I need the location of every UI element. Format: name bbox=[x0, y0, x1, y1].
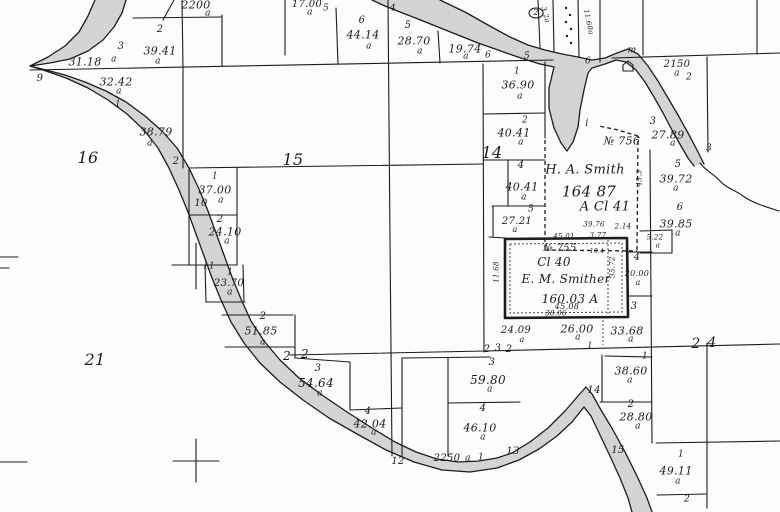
map-label: a bbox=[575, 334, 581, 343]
map-label: 2 bbox=[628, 400, 635, 410]
map-label: a bbox=[218, 197, 224, 206]
map-label: 5 bbox=[323, 5, 329, 14]
map-label: 4 bbox=[365, 407, 372, 417]
map-label: 4 bbox=[518, 161, 525, 171]
map-label: a bbox=[512, 226, 517, 234]
map-label: 2250 bbox=[434, 454, 461, 464]
map-label: 3 bbox=[495, 344, 502, 354]
map-label: 2 bbox=[684, 496, 690, 505]
map-label: 15 bbox=[283, 152, 304, 168]
map-label: m bbox=[628, 47, 637, 56]
map-label: Cl 40 bbox=[537, 256, 571, 268]
map-label: 3 bbox=[118, 42, 125, 52]
map-label: 2 bbox=[157, 25, 164, 35]
map-label: 5.22 bbox=[647, 235, 664, 242]
map-label: a bbox=[155, 58, 161, 67]
map-label: 2 bbox=[217, 215, 224, 225]
map-label: i bbox=[585, 119, 589, 129]
map-label: 5 bbox=[675, 160, 682, 170]
map-label: a bbox=[317, 390, 323, 399]
map-label: 37.00 bbox=[199, 185, 232, 196]
map-label: 31.18 bbox=[69, 57, 102, 68]
map-label: 1 bbox=[678, 451, 684, 460]
map-label: 49.11 bbox=[660, 466, 693, 477]
map-label: 44.14 bbox=[347, 30, 380, 41]
map-label: 27.89 bbox=[652, 130, 685, 141]
map-label: 11.60a bbox=[582, 9, 594, 36]
map-label: a bbox=[521, 194, 527, 203]
map-label: 10 bbox=[194, 199, 207, 209]
map-label: 14 bbox=[482, 145, 503, 161]
map-label: 1 bbox=[115, 101, 121, 110]
map-label: 20.00 bbox=[625, 270, 649, 278]
map-label: a bbox=[517, 93, 523, 102]
map-label: 51.85 bbox=[245, 326, 278, 337]
map-label: a bbox=[627, 377, 633, 386]
map-label: a bbox=[628, 336, 634, 345]
map-label: 33.68 bbox=[611, 326, 644, 337]
map-label: a bbox=[519, 336, 524, 344]
map-label: 40.41 bbox=[498, 128, 531, 139]
map-label: a bbox=[674, 70, 680, 79]
map-label: 2 bbox=[522, 117, 528, 126]
map-label: 2 bbox=[686, 74, 692, 83]
map-label: 1 bbox=[478, 454, 484, 463]
map-label: a bbox=[656, 243, 660, 250]
map-label: 5 bbox=[528, 206, 534, 215]
plat-labels: 2200a17.00a52339.41a31.18a932.42a138.79a… bbox=[0, 0, 780, 512]
map-label: 6 bbox=[585, 58, 591, 67]
map-label: 45.3 bbox=[637, 170, 644, 187]
map-label: 11.68 bbox=[494, 261, 501, 283]
map-label: 2 bbox=[260, 312, 267, 322]
map-label: 9 bbox=[37, 74, 44, 84]
map-label: a bbox=[675, 478, 681, 487]
map-label: 5 bbox=[405, 21, 412, 31]
map-label: 3.2a bbox=[539, 6, 550, 24]
map-label: a bbox=[417, 48, 423, 57]
map-label: № 756 bbox=[604, 136, 640, 147]
map-label: a bbox=[673, 185, 679, 194]
map-label: 4 bbox=[707, 336, 716, 350]
map-label: 2 bbox=[506, 345, 513, 355]
map-label: a bbox=[675, 230, 681, 239]
map-label: 6 bbox=[359, 16, 366, 26]
map-label: 2 bbox=[533, 9, 538, 17]
map-label: 1 bbox=[212, 173, 218, 182]
map-label: a bbox=[670, 140, 676, 149]
map-label: 2 bbox=[173, 157, 180, 167]
map-label: a bbox=[227, 289, 233, 298]
map-label: 1 bbox=[514, 68, 520, 77]
map-label: a bbox=[487, 386, 493, 395]
map-label: a bbox=[307, 9, 313, 18]
map-label: a bbox=[111, 56, 117, 65]
map-label: 16 bbox=[78, 150, 99, 166]
map-label: 3 bbox=[706, 145, 712, 154]
map-label: 15 bbox=[611, 446, 624, 456]
map-label: a bbox=[463, 53, 469, 62]
map-label: 3.77 bbox=[590, 233, 607, 240]
map-label: 2 bbox=[301, 348, 309, 360]
map-label: 3 bbox=[650, 117, 657, 127]
map-label: 2 bbox=[283, 350, 291, 362]
map-label: 39.76 bbox=[583, 222, 605, 229]
map-label: 40.41 bbox=[506, 182, 539, 193]
map-label: 6 bbox=[485, 52, 491, 61]
map-label: a bbox=[224, 238, 230, 247]
map-label: A Cl 41 bbox=[580, 201, 630, 214]
map-label: 45.01 bbox=[553, 234, 575, 241]
map-label: 14 bbox=[587, 386, 600, 396]
map-label: a bbox=[205, 10, 211, 19]
map-label: 3 bbox=[631, 302, 638, 312]
map-label: a bbox=[635, 279, 640, 287]
map-label: a bbox=[147, 140, 153, 149]
map-label: 36.90 bbox=[502, 80, 535, 91]
map-label: 1 bbox=[587, 342, 592, 350]
map-label: 35.72 bbox=[610, 256, 617, 278]
map-label: № 755 bbox=[543, 244, 576, 254]
map-label: 1 bbox=[642, 353, 648, 362]
map-label: 2.14 bbox=[615, 224, 632, 231]
map-label: 24.09 bbox=[501, 326, 531, 336]
map-label: a bbox=[518, 139, 524, 148]
map-label: 4 bbox=[634, 253, 641, 263]
map-label: 4 bbox=[390, 5, 396, 14]
map-label: a bbox=[260, 339, 266, 348]
map-label: 5 bbox=[524, 53, 530, 62]
map-label: a bbox=[480, 434, 486, 443]
map-label: 3 bbox=[315, 364, 322, 374]
map-label: a bbox=[371, 429, 377, 438]
map-label: a bbox=[366, 43, 372, 52]
map-label: 21 bbox=[85, 352, 106, 368]
map-label: 3 bbox=[489, 358, 496, 368]
map-label: 39.41 bbox=[144, 46, 177, 57]
map-label: a bbox=[635, 423, 641, 432]
map-label: E. M. Smither bbox=[521, 273, 610, 285]
map-label: 38.79 bbox=[140, 127, 173, 138]
map-label: 13 bbox=[506, 447, 519, 457]
map-label: 42.04 bbox=[354, 419, 387, 430]
map-label: 164 87 bbox=[562, 185, 616, 200]
map-label: 2 bbox=[484, 345, 491, 355]
map-label: a bbox=[116, 88, 122, 97]
map-label: 12 bbox=[391, 457, 404, 467]
map-label: 6 bbox=[677, 203, 684, 213]
map-label: 28.70 bbox=[398, 36, 431, 47]
map-label: 38.06 bbox=[545, 311, 567, 318]
survey-plat-map: 2200a17.00a52339.41a31.18a932.42a138.79a… bbox=[0, 0, 780, 512]
map-label: 1 bbox=[227, 269, 233, 278]
map-label: 54.64 bbox=[298, 377, 334, 389]
map-label: 4 bbox=[480, 404, 487, 414]
map-label: 11 bbox=[203, 263, 215, 272]
map-label: 10.4 bbox=[590, 249, 605, 255]
map-label: a bbox=[465, 455, 471, 464]
map-label: 2 bbox=[691, 337, 700, 351]
map-label: H. A. Smith bbox=[545, 164, 625, 177]
